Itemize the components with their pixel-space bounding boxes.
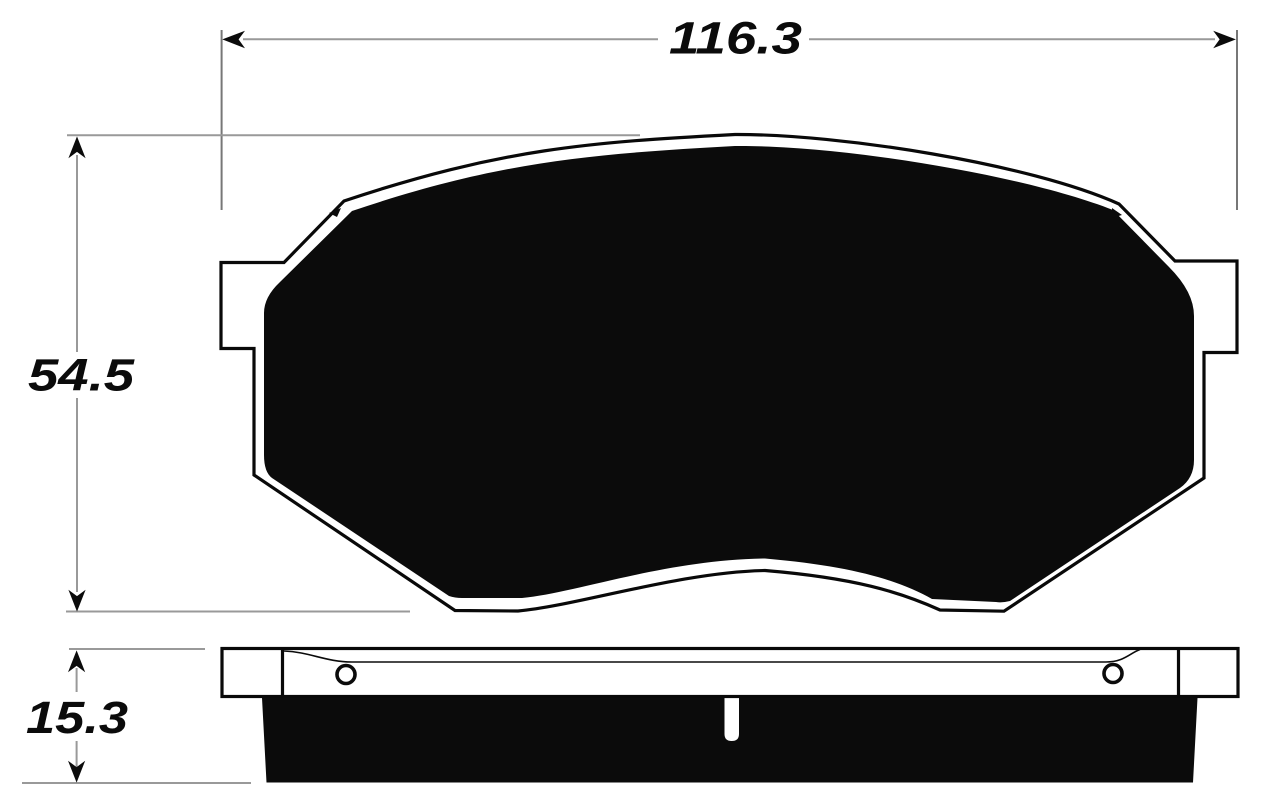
svg-text:15.3: 15.3 [26, 692, 128, 743]
svg-text:54.5: 54.5 [28, 350, 135, 401]
svg-text:116.3: 116.3 [669, 12, 802, 63]
